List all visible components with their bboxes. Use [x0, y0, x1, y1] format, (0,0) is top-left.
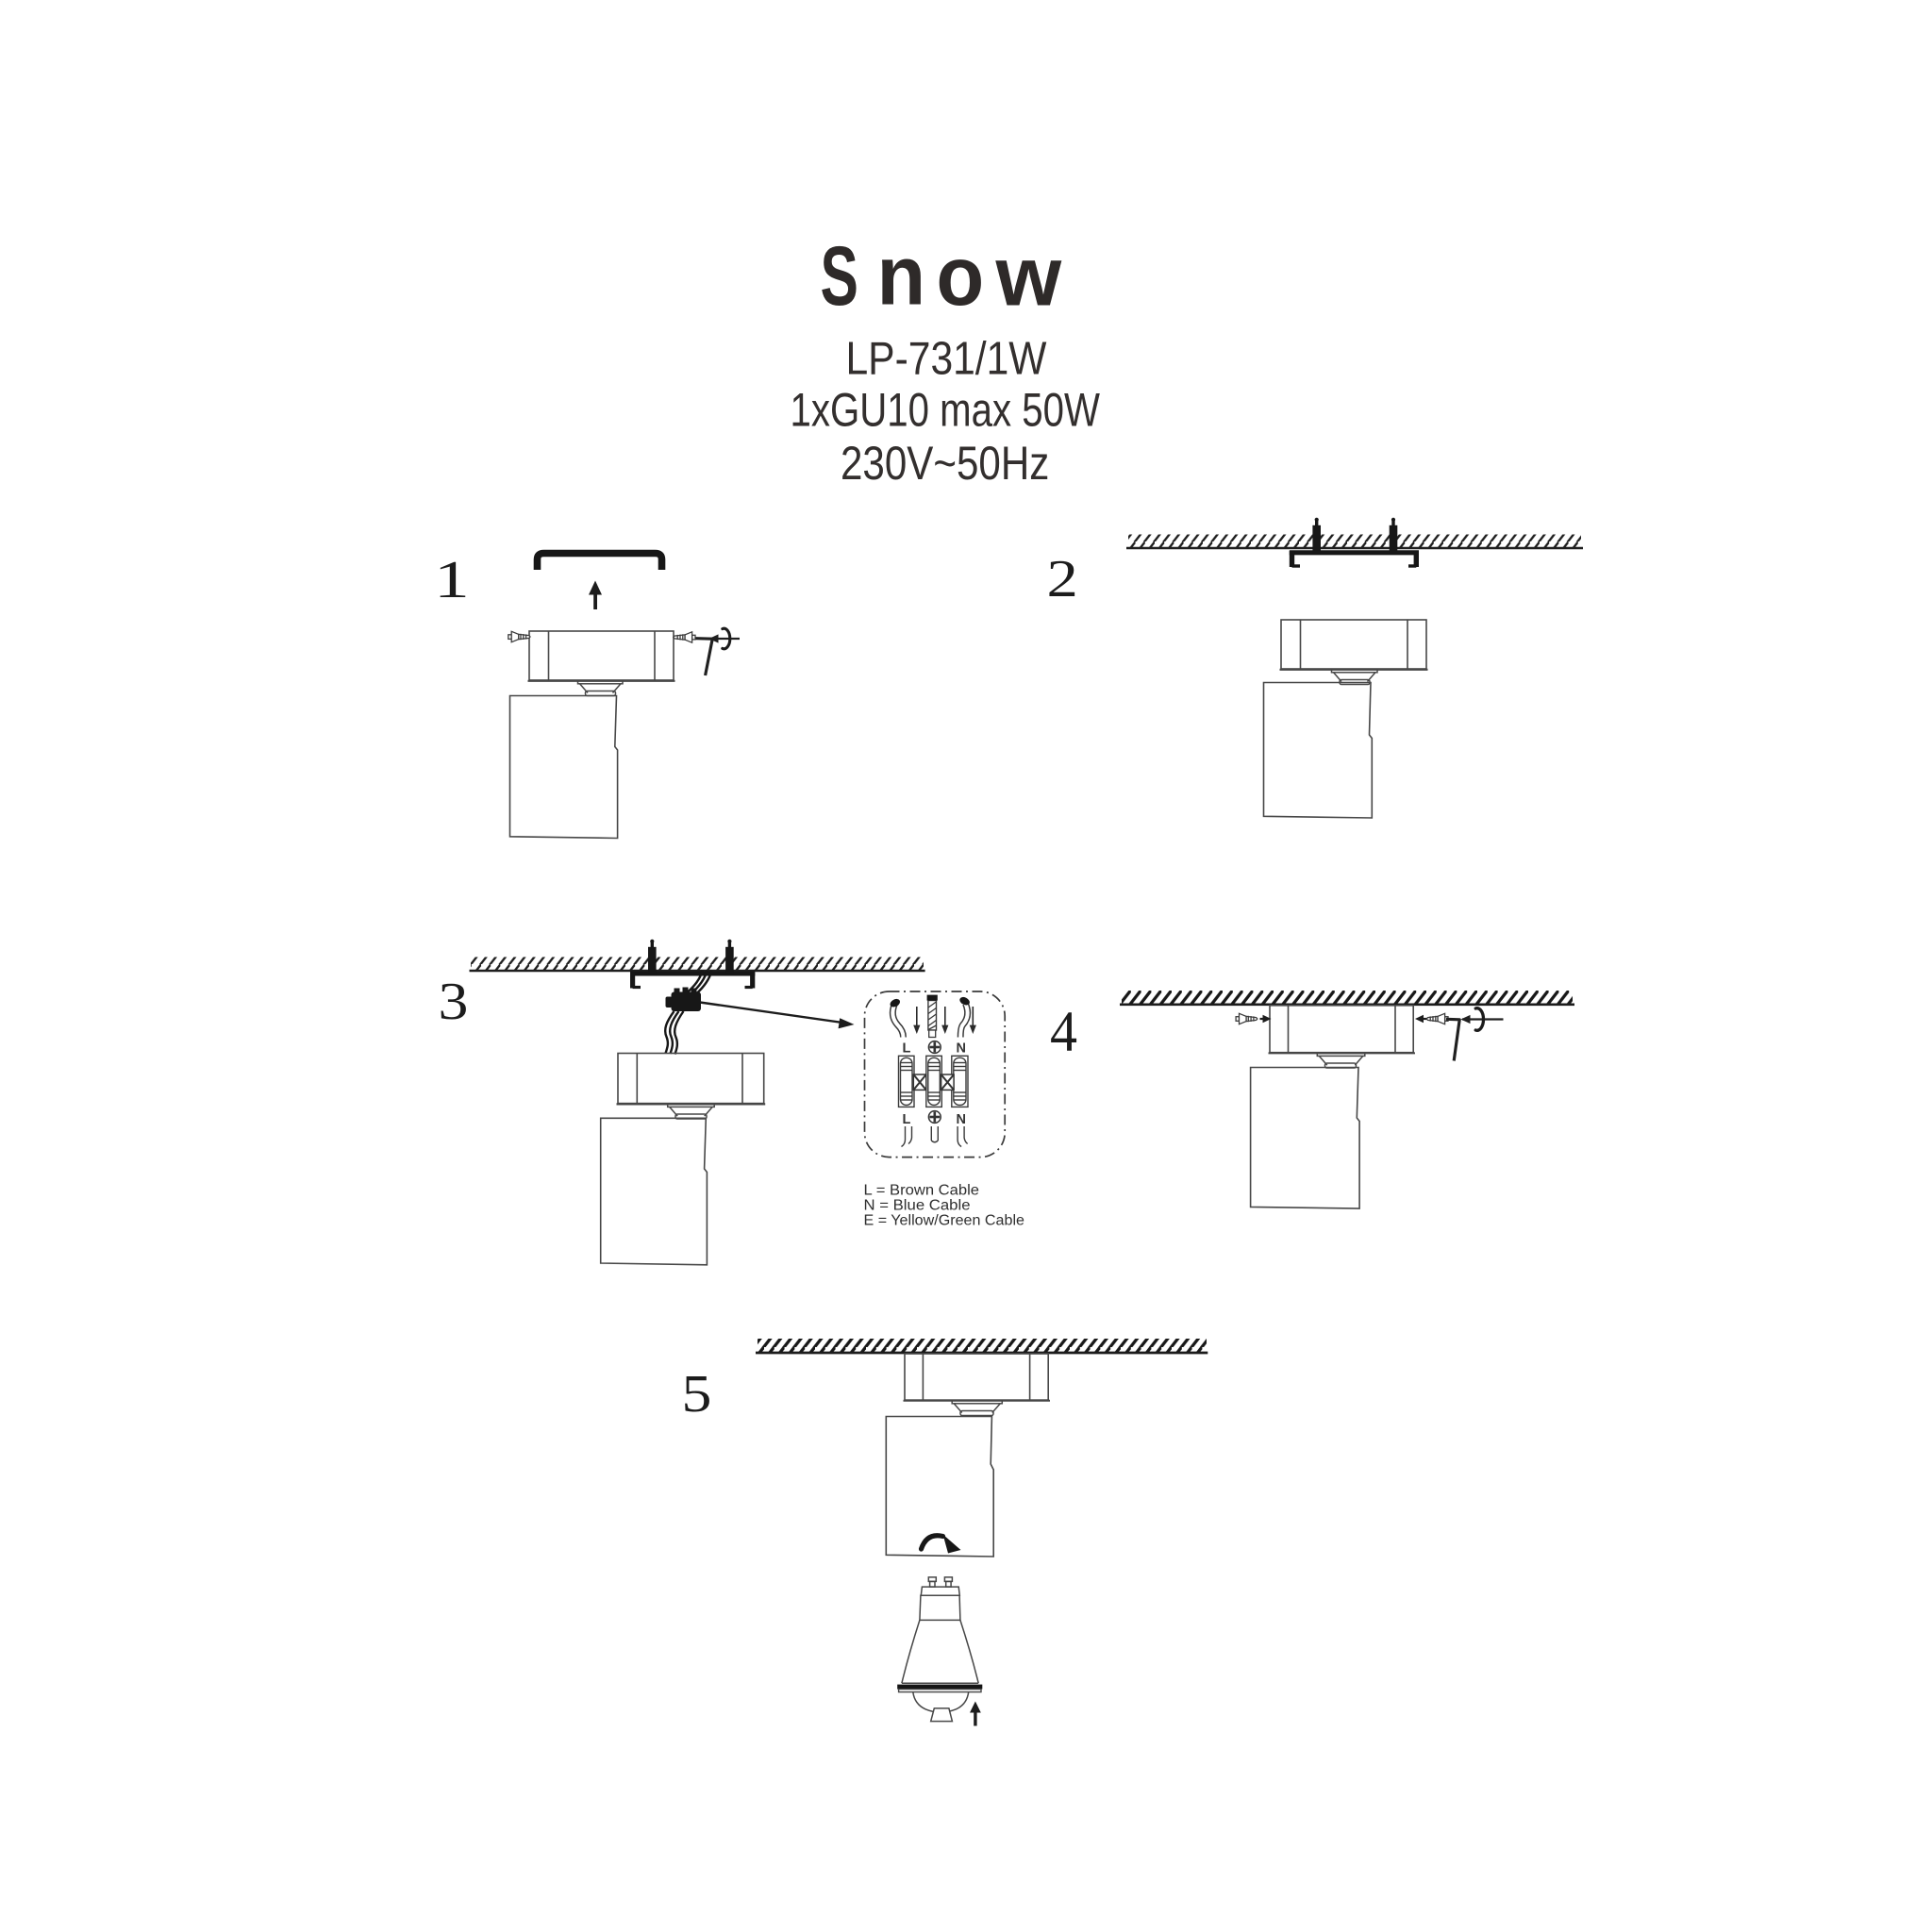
svg-text:4: 4 — [1050, 1000, 1077, 1064]
svg-text:5: 5 — [682, 1364, 712, 1423]
svg-text:N = Blue Cable: N = Blue Cable — [864, 1198, 971, 1214]
svg-text:1: 1 — [434, 551, 470, 608]
svg-text:L: L — [903, 1041, 911, 1057]
svg-text:n: n — [877, 228, 926, 323]
svg-text:L = Brown Cable: L = Brown Cable — [864, 1183, 980, 1199]
svg-text:w: w — [994, 229, 1061, 324]
svg-text:N: N — [957, 1041, 966, 1057]
svg-text:o: o — [937, 229, 985, 323]
svg-text:230V~50Hz: 230V~50Hz — [841, 437, 1049, 490]
svg-text:E = Yellow/Green Cable: E = Yellow/Green Cable — [864, 1213, 1025, 1229]
svg-text:3: 3 — [439, 972, 469, 1030]
svg-text:S: S — [821, 230, 858, 324]
svg-text:L: L — [903, 1112, 911, 1127]
svg-text:2: 2 — [1047, 550, 1078, 608]
svg-text:1xGU10 max 50W: 1xGU10 max 50W — [791, 384, 1101, 437]
svg-text:LP-731/1W: LP-731/1W — [846, 334, 1048, 385]
svg-text:N: N — [957, 1112, 966, 1127]
